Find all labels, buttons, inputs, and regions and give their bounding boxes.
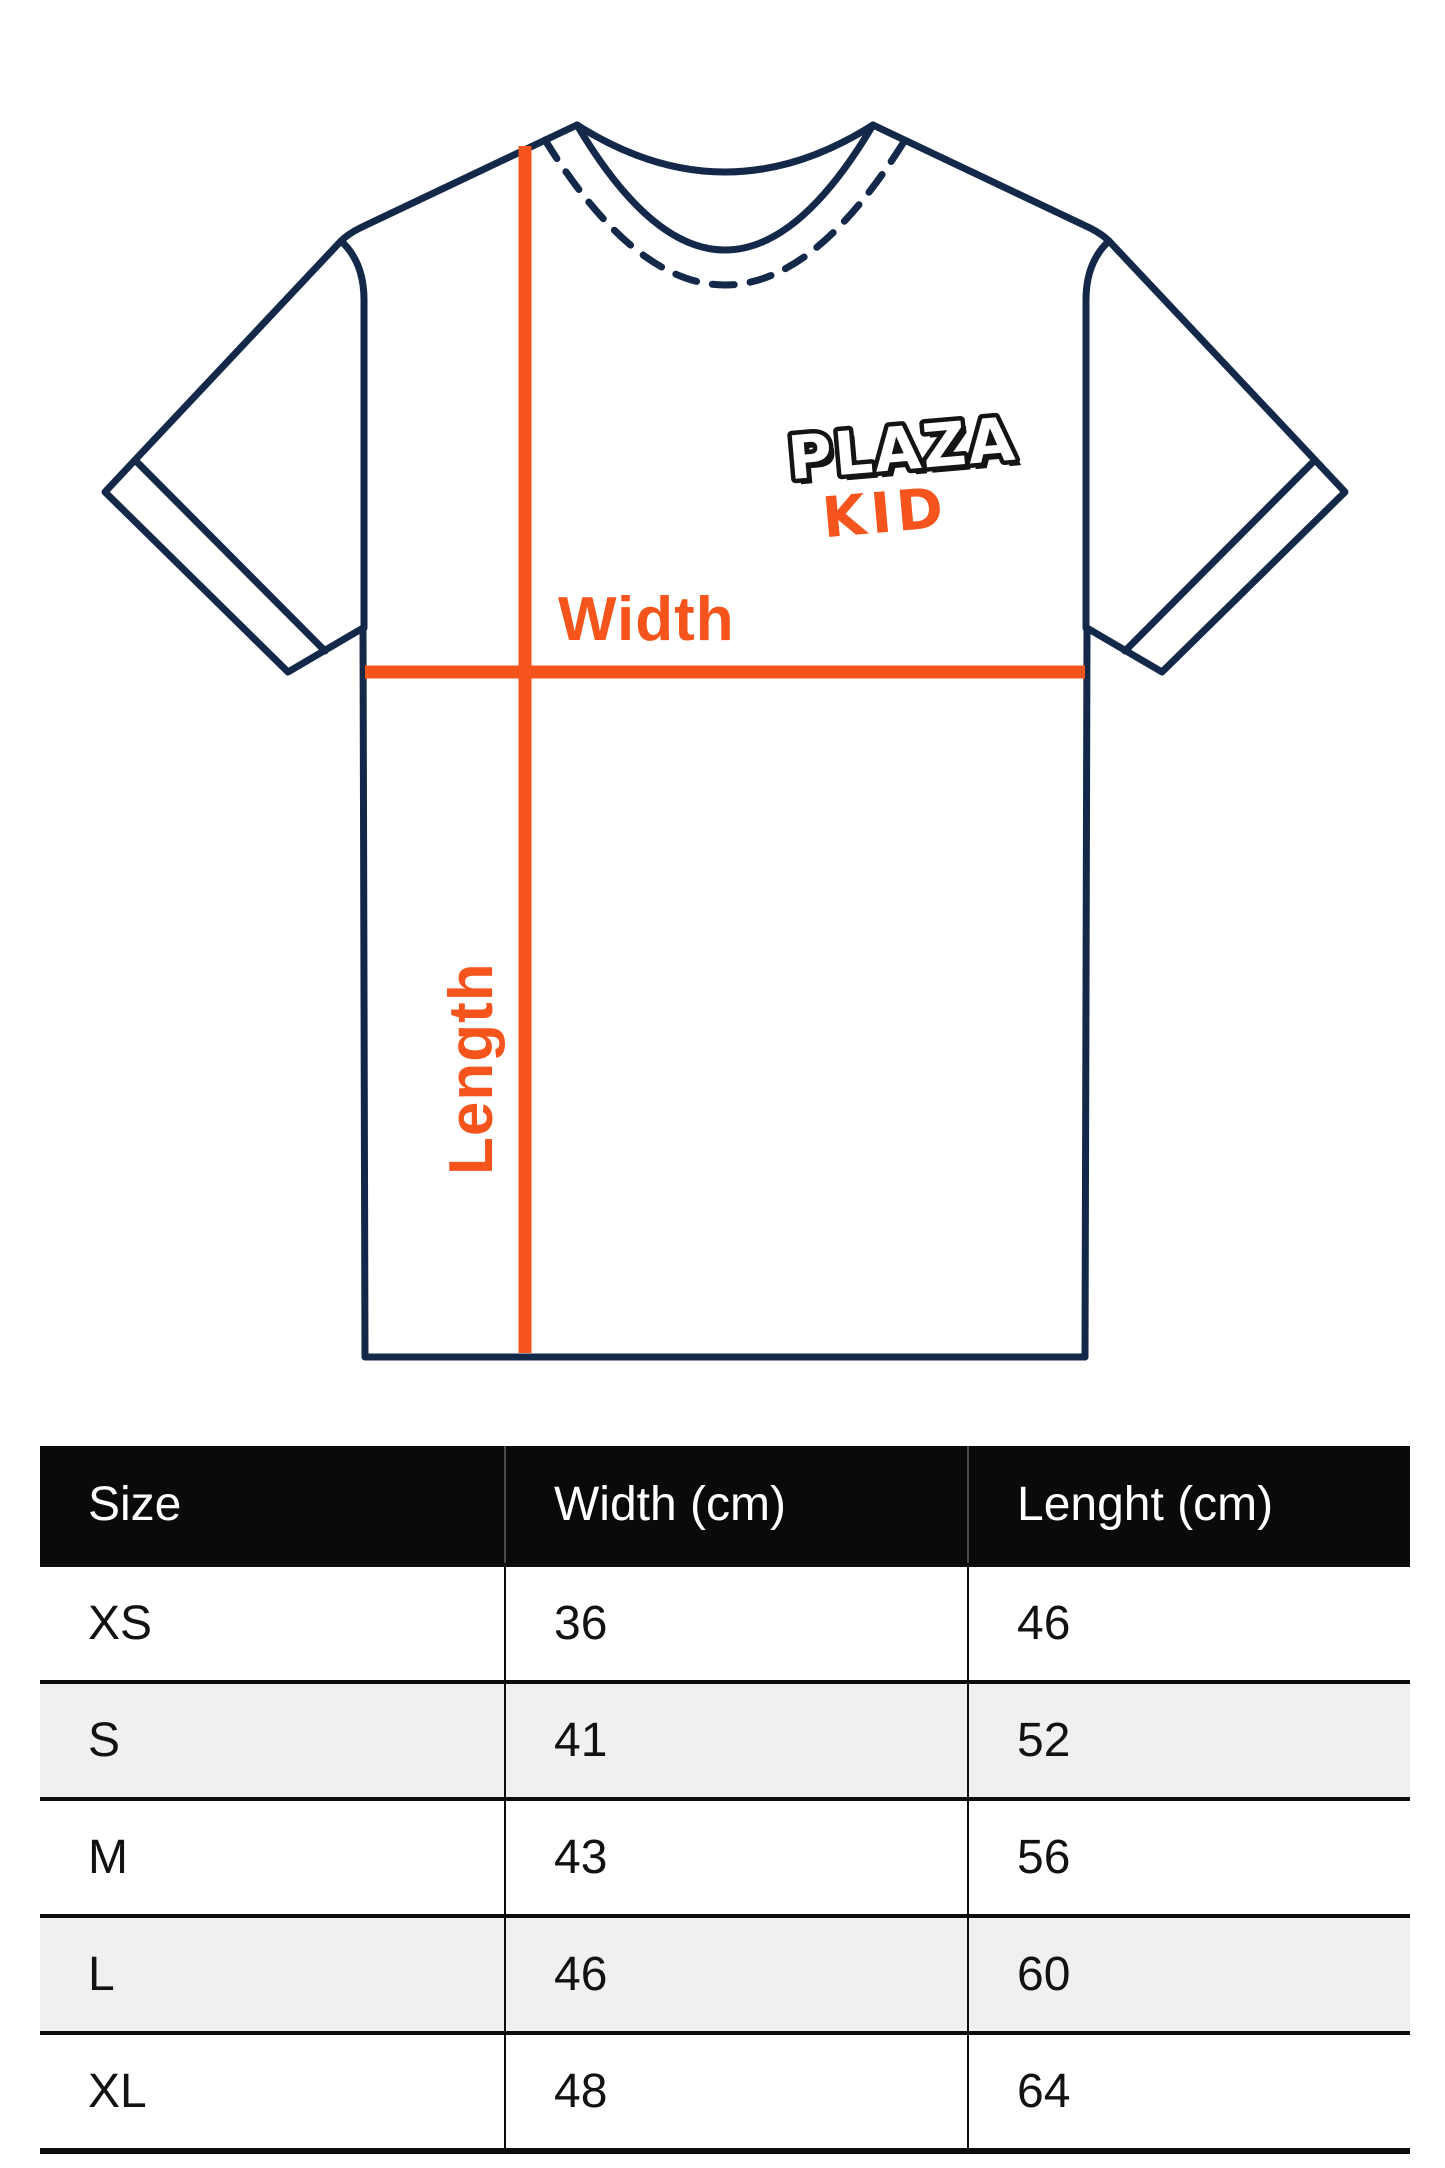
table-row-xs: XS 36 46 bbox=[40, 1565, 1410, 1682]
tshirt-diagram: Width Length PLAZA PLAZA KID bbox=[0, 0, 1445, 1446]
size-cell: L bbox=[40, 1916, 505, 2033]
table-row-l: L 46 60 bbox=[40, 1916, 1410, 2033]
length-cell: 52 bbox=[968, 1682, 1410, 1799]
length-cell: 56 bbox=[968, 1799, 1410, 1916]
size-chart-page: Width Length PLAZA PLAZA KID Size Width … bbox=[0, 0, 1445, 2168]
table-row-s: S 41 52 bbox=[40, 1682, 1410, 1799]
collar-outer-curve bbox=[577, 125, 873, 250]
width-label: Width bbox=[558, 585, 735, 654]
width-cell: 41 bbox=[505, 1682, 968, 1799]
logo-kid-text: KID bbox=[820, 476, 951, 552]
size-table: Size Width (cm) Lenght (cm) XS 36 46 S 4… bbox=[40, 1446, 1410, 2154]
size-cell: S bbox=[40, 1682, 505, 1799]
width-cell: 48 bbox=[505, 2033, 968, 2151]
length-cell: 64 bbox=[968, 2033, 1410, 2151]
length-cell: 60 bbox=[968, 1916, 1410, 2033]
left-armhole-seam bbox=[341, 241, 364, 628]
width-cell: 36 bbox=[505, 1565, 968, 1682]
size-cell: XL bbox=[40, 2033, 505, 2151]
size-cell: XS bbox=[40, 1565, 505, 1682]
right-armhole-seam bbox=[1086, 241, 1109, 628]
length-cell: 46 bbox=[968, 1565, 1410, 1682]
collar-inner-curve bbox=[577, 125, 873, 172]
column-header-width: Width (cm) bbox=[505, 1446, 968, 1565]
left-cuff-seam bbox=[135, 460, 325, 651]
column-header-length: Lenght (cm) bbox=[968, 1446, 1410, 1565]
right-cuff-seam bbox=[1125, 460, 1315, 651]
plaza-kid-logo: PLAZA PLAZA KID bbox=[785, 405, 1024, 552]
size-cell: M bbox=[40, 1799, 505, 1916]
width-cell: 46 bbox=[505, 1916, 968, 2033]
table-row-xl: XL 48 64 bbox=[40, 2033, 1410, 2151]
table-row-m: M 43 56 bbox=[40, 1799, 1410, 1916]
tshirt-illustration: Width Length PLAZA PLAZA KID bbox=[0, 0, 1445, 1446]
width-cell: 43 bbox=[505, 1799, 968, 1916]
size-table-header-row: Size Width (cm) Lenght (cm) bbox=[40, 1446, 1410, 1565]
tshirt-outline bbox=[105, 125, 1345, 1357]
column-header-size: Size bbox=[40, 1446, 505, 1565]
length-label: Length bbox=[437, 962, 506, 1175]
